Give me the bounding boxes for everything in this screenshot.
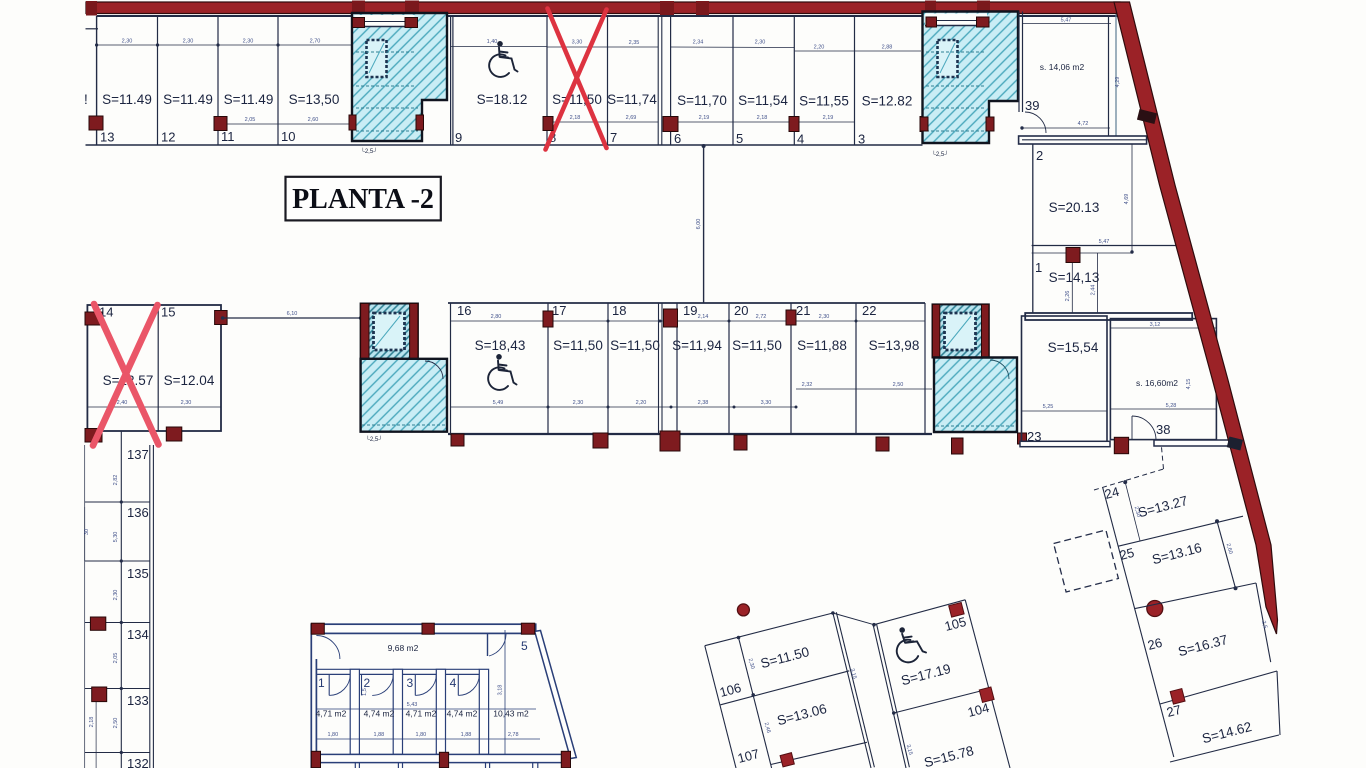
svg-text:S=13,50: S=13,50 [289, 92, 340, 107]
svg-text:1,40: 1,40 [487, 39, 498, 45]
svg-text:135: 135 [127, 566, 149, 581]
svg-text:15: 15 [161, 305, 175, 320]
svg-text:5,25: 5,25 [1043, 404, 1054, 410]
svg-text:3: 3 [858, 132, 865, 147]
svg-text:2: 2 [1036, 148, 1043, 163]
svg-text:2,30: 2,30 [819, 314, 830, 320]
svg-text:s. 16,60m2: s. 16,60m2 [1136, 378, 1178, 388]
svg-text:!: ! [84, 92, 88, 107]
svg-text:S=11,70: S=11,70 [677, 93, 727, 108]
svg-text:6,00: 6,00 [696, 219, 702, 230]
svg-text:2,18: 2,18 [89, 717, 95, 728]
svg-text:2,18: 2,18 [757, 115, 768, 121]
svg-text:2,60: 2,60 [308, 117, 319, 123]
svg-text:PLANTA -2: PLANTA -2 [292, 184, 434, 215]
svg-text:2,05: 2,05 [113, 653, 119, 664]
svg-text:7: 7 [610, 130, 617, 145]
svg-text:└2,5┘: └2,5┘ [366, 435, 383, 443]
svg-text:S=13,98: S=13,98 [869, 338, 920, 353]
svg-text:4: 4 [797, 132, 804, 147]
svg-text:1,80: 1,80 [327, 732, 338, 738]
svg-text:1,88: 1,88 [461, 732, 472, 738]
svg-text:1: 1 [1035, 260, 1042, 275]
svg-text:S=11.49: S=11.49 [224, 92, 274, 107]
svg-text:2,34: 2,34 [693, 40, 704, 46]
svg-text:5: 5 [521, 639, 528, 653]
svg-text:136: 136 [127, 505, 149, 520]
svg-text:12: 12 [161, 130, 175, 145]
svg-text:30: 30 [84, 529, 90, 535]
svg-text:2,44: 2,44 [1091, 285, 1097, 296]
svg-text:2,18: 2,18 [570, 115, 581, 121]
svg-text:11: 11 [221, 129, 235, 144]
svg-text:5,47: 5,47 [1061, 18, 1072, 24]
svg-text:1,80: 1,80 [416, 732, 427, 738]
svg-text:132: 132 [127, 756, 149, 768]
svg-text:S=15,54: S=15,54 [1048, 340, 1099, 355]
svg-text:2,30: 2,30 [181, 400, 192, 406]
svg-text:2,30: 2,30 [183, 39, 194, 45]
svg-text:2,19: 2,19 [699, 115, 710, 121]
svg-text:5,49: 5,49 [493, 400, 504, 406]
svg-text:5,30: 5,30 [113, 532, 119, 543]
svg-text:4,71 m2: 4,71 m2 [406, 709, 437, 719]
svg-text:2,05: 2,05 [245, 117, 256, 123]
svg-text:S=18.12: S=18.12 [477, 92, 528, 107]
svg-text:2: 2 [364, 676, 371, 690]
svg-text:5,47: 5,47 [1099, 239, 1110, 245]
svg-text:2,38: 2,38 [698, 400, 709, 406]
svg-text:3,30: 3,30 [572, 40, 583, 46]
svg-text:5,28: 5,28 [1166, 403, 1177, 409]
svg-text:2,78: 2,78 [508, 732, 519, 738]
svg-text:S=11,74: S=11,74 [607, 92, 657, 107]
svg-text:10: 10 [281, 129, 295, 144]
svg-text:2,40: 2,40 [117, 400, 128, 406]
svg-text:S=12.82: S=12.82 [862, 94, 913, 109]
svg-text:S=20.13: S=20.13 [1049, 200, 1100, 215]
svg-text:9,68 m2: 9,68 m2 [388, 643, 419, 653]
svg-text:134: 134 [127, 627, 149, 642]
svg-text:2,35: 2,35 [629, 40, 640, 46]
svg-text:6,10: 6,10 [287, 311, 298, 317]
svg-text:2,70: 2,70 [310, 39, 321, 45]
svg-text:22: 22 [862, 303, 876, 318]
svg-text:S=11,54: S=11,54 [738, 93, 788, 108]
svg-text:2,14: 2,14 [698, 314, 709, 320]
svg-text:2,19: 2,19 [823, 115, 834, 121]
svg-text:2,30: 2,30 [243, 39, 254, 45]
svg-text:2,26: 2,26 [1065, 291, 1071, 302]
svg-text:S=11.49: S=11.49 [163, 92, 213, 107]
svg-text:S=11,88: S=11,88 [797, 338, 847, 353]
svg-text:16: 16 [457, 303, 471, 318]
svg-text:17: 17 [552, 303, 566, 318]
svg-text:2,30: 2,30 [113, 590, 119, 601]
svg-text:2,82: 2,82 [113, 475, 119, 486]
svg-text:S=11,94: S=11,94 [672, 338, 722, 353]
svg-text:2,50: 2,50 [113, 718, 119, 729]
svg-text:2,69: 2,69 [626, 115, 637, 121]
svg-text:4,72: 4,72 [1078, 121, 1089, 127]
svg-text:1,5: 1,5 [362, 688, 368, 696]
svg-text:2,72: 2,72 [756, 314, 767, 320]
svg-text:4,15: 4,15 [1186, 379, 1192, 390]
svg-text:S=11,50: S=11,50 [732, 338, 782, 353]
svg-text:2,20: 2,20 [636, 400, 647, 406]
svg-text:1: 1 [318, 676, 325, 690]
svg-text:39: 39 [1025, 98, 1039, 113]
svg-text:38: 38 [1156, 422, 1170, 437]
svg-text:2,30: 2,30 [755, 40, 766, 46]
svg-text:4,69: 4,69 [1124, 194, 1130, 205]
svg-text:2,88: 2,88 [882, 45, 893, 51]
svg-text:S=18,43: S=18,43 [475, 338, 526, 353]
svg-text:10,43 m2: 10,43 m2 [493, 709, 529, 719]
svg-text:4: 4 [450, 676, 457, 690]
svg-text:s. 14,06 m2: s. 14,06 m2 [1040, 62, 1085, 72]
svg-text:S=11,50: S=11,50 [552, 92, 602, 107]
svg-text:3,18: 3,18 [498, 685, 504, 696]
svg-text:19: 19 [683, 303, 697, 318]
svg-text:133: 133 [127, 693, 149, 708]
svg-text:└2,5┘: └2,5┘ [932, 150, 949, 158]
svg-text:S=12.04: S=12.04 [164, 373, 215, 388]
svg-text:3,12: 3,12 [1150, 322, 1161, 328]
svg-text:5: 5 [736, 131, 743, 146]
svg-text:S=11,50: S=11,50 [553, 338, 603, 353]
svg-text:3: 3 [407, 676, 414, 690]
svg-text:2,50: 2,50 [893, 382, 904, 388]
svg-text:S=14,13: S=14,13 [1049, 270, 1100, 285]
svg-text:9: 9 [455, 130, 462, 145]
svg-text:2,20: 2,20 [814, 45, 825, 51]
svg-text:1,88: 1,88 [374, 732, 385, 738]
svg-text:18: 18 [612, 303, 626, 318]
svg-text:4,74 m2: 4,74 m2 [364, 709, 395, 719]
svg-text:20: 20 [734, 303, 748, 318]
svg-text:S=11,50: S=11,50 [610, 338, 660, 353]
svg-text:2,80: 2,80 [491, 314, 502, 320]
svg-text:2,30: 2,30 [122, 39, 133, 45]
svg-text:└2,5┘: └2,5┘ [361, 147, 378, 155]
svg-text:6: 6 [674, 131, 681, 146]
svg-text:4,29: 4,29 [1115, 77, 1121, 88]
svg-text:2,30: 2,30 [573, 400, 584, 406]
svg-text:4,74 m2: 4,74 m2 [447, 709, 478, 719]
svg-text:S=11,55: S=11,55 [799, 94, 849, 109]
svg-text:21: 21 [796, 303, 810, 318]
svg-text:137: 137 [127, 447, 149, 462]
svg-text:S=11.49: S=11.49 [102, 92, 152, 107]
svg-text:3,30: 3,30 [761, 400, 772, 406]
svg-text:5,43: 5,43 [407, 702, 418, 708]
svg-text:13: 13 [100, 130, 114, 145]
svg-text:4,71 m2: 4,71 m2 [316, 709, 347, 719]
svg-text:2,32: 2,32 [802, 382, 813, 388]
